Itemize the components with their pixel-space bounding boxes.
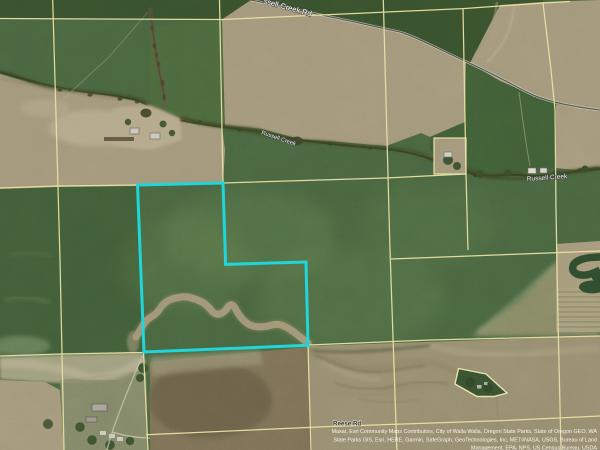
svg-text:Maxar, Esri Community Maps Con: Maxar, Esri Community Maps Contributors,…: [332, 429, 598, 435]
svg-text:Reese Rd: Reese Rd: [333, 421, 361, 428]
svg-text:State Parks GIS, Esri, HERE, G: State Parks GIS, Esri, HERE, Garmin, Saf…: [333, 438, 597, 444]
svg-text:Management, EPA, NPS, US Censu: Management, EPA, NPS, US Census Bureau, …: [471, 446, 597, 450]
